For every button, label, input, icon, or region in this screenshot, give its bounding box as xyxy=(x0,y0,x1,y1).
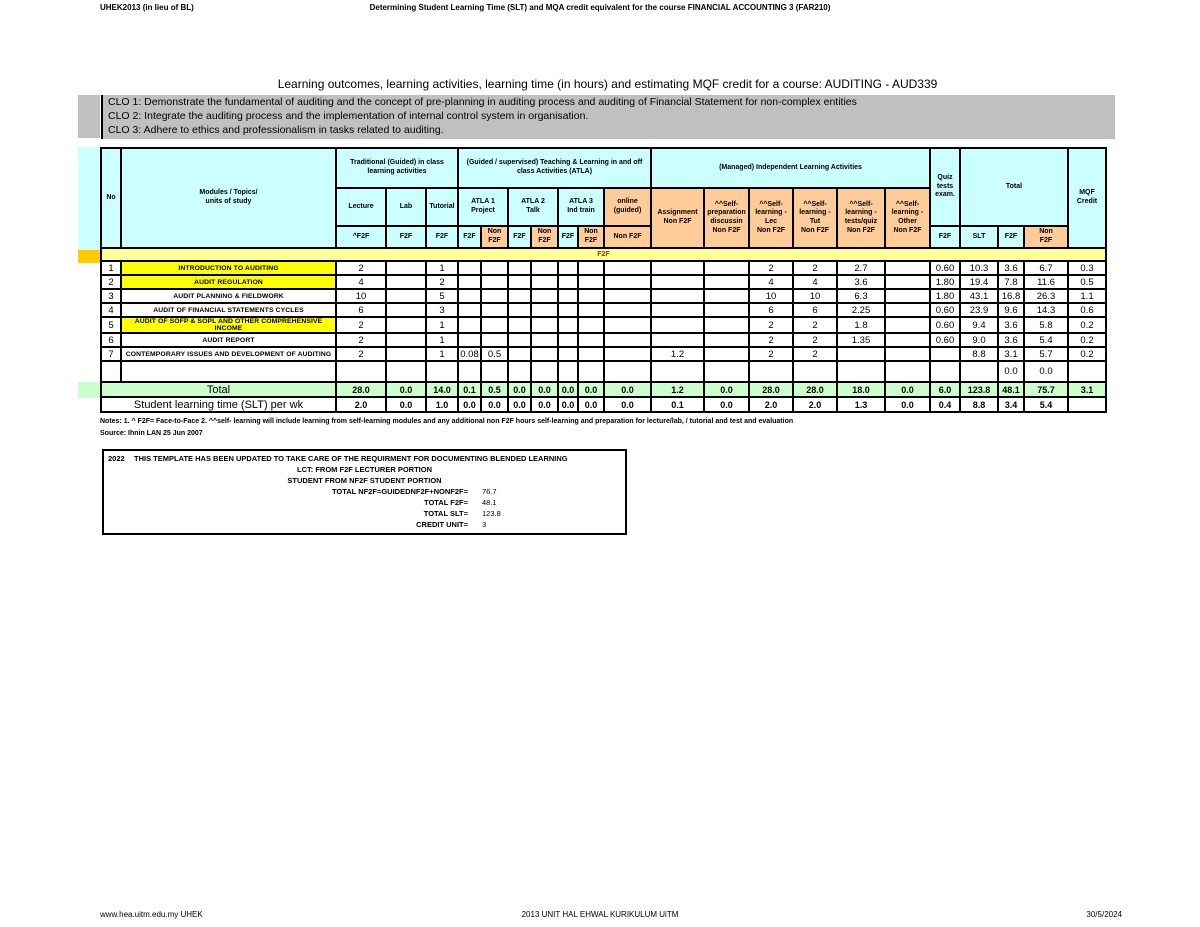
slt-wk-self-lec: 2.0 xyxy=(749,397,793,412)
cell-tutorial-row6: 1 xyxy=(426,333,458,347)
cell-atla3-nonf2f-row3 xyxy=(578,289,604,303)
cell-self-prep-row6 xyxy=(704,333,749,347)
cell-tutorial-row4: 3 xyxy=(426,303,458,317)
page-footer-center: 2013 UNIT HAL EHWAL KURIKULUM UiTM xyxy=(0,910,1200,919)
total-mqf-credit: 3.1 xyxy=(1068,382,1106,397)
calc-label: TOTAL SLT= xyxy=(108,508,468,519)
cell-atla1-nonf2f-row2 xyxy=(481,275,508,289)
cell-atla3-f2f-row1 xyxy=(558,261,578,275)
cell-atla2-nonf2f-row1 xyxy=(531,261,558,275)
cell-atla2-nonf2f-row6 xyxy=(531,333,558,347)
cell-lecture-row1: 2 xyxy=(336,261,386,275)
total-self-prep: 0.0 xyxy=(704,382,749,397)
header-mqf-credit: MQF Credit xyxy=(1068,148,1106,248)
cell-self-lec-row6: 2 xyxy=(749,333,793,347)
cell-total-nonf2f-row3: 26.3 xyxy=(1024,289,1068,303)
cell-mqf-credit-row6: 0.2 xyxy=(1068,333,1106,347)
cell-atla1-nonf2f-row7: 0.5 xyxy=(481,347,508,361)
cell-atla1-nonf2f-row4 xyxy=(481,303,508,317)
cell-lecture-row2: 4 xyxy=(336,275,386,289)
cell-total-f2f-row3: 16.8 xyxy=(998,289,1024,303)
row-number: 4 xyxy=(101,303,121,317)
slt-per-wk-label: Student learning time (SLT) per wk xyxy=(101,397,336,412)
slt-wk-self-quiz: 1.3 xyxy=(837,397,885,412)
cell-self-quiz-row2: 3.6 xyxy=(837,275,885,289)
header-no: No xyxy=(101,148,121,248)
sub-total-f2f: F2F xyxy=(998,226,1024,248)
cell-total-nonf2f-row5: 5.8 xyxy=(1024,317,1068,333)
cell-lecture-row3: 10 xyxy=(336,289,386,303)
slt-wk-total-nonf2f: 5.4 xyxy=(1024,397,1068,412)
cell-atla2-f2f-row5 xyxy=(508,317,531,333)
cell-mqf-credit-row5: 0.2 xyxy=(1068,317,1106,333)
total-atla3-f2f: 0.0 xyxy=(558,382,578,397)
cell-self-other-row4 xyxy=(885,303,930,317)
total-total-slt: 123.8 xyxy=(960,382,998,397)
cell-self-lec-row5: 2 xyxy=(749,317,793,333)
cell-atla3-nonf2f-row7 xyxy=(578,347,604,361)
topic-cell: AUDIT OF FINANCIAL STATEMENTS CYCLES xyxy=(121,303,336,317)
cell-atla2-nonf2f-row7 xyxy=(531,347,558,361)
header-self-tut: ^^Self-learning - Tut Non F2F xyxy=(793,188,837,248)
cell-online-row2 xyxy=(604,275,651,289)
cell-atla1-nonf2f-row1 xyxy=(481,261,508,275)
margin-strip-cyan xyxy=(78,147,100,250)
row-number: 5 xyxy=(101,317,121,333)
slt-wk-atla1-f2f: 0.0 xyxy=(458,397,481,412)
cell-quiz-row7 xyxy=(930,347,960,361)
slt-wk-atla2-f2f: 0.0 xyxy=(508,397,531,412)
header-band-managed: (Managed) Independent Learning Activitie… xyxy=(651,148,930,188)
cell-total-slt-row2: 19.4 xyxy=(960,275,998,289)
calc-value: 3 xyxy=(482,519,486,530)
cell-atla3-nonf2f-empty xyxy=(578,361,604,382)
row-number: 3 xyxy=(101,289,121,303)
total-total-f2f: 48.1 xyxy=(998,382,1024,397)
topic-cell: CONTEMPORARY ISSUES AND DEVELOPMENT OF A… xyxy=(121,347,336,361)
sub-atla2-nonf2f: Non F2F xyxy=(531,226,558,248)
cell-lab-row3 xyxy=(386,289,426,303)
cell-self-prep-row5 xyxy=(704,317,749,333)
cell-assignment-row5 xyxy=(651,317,704,333)
slt-wk-assignment: 0.1 xyxy=(651,397,704,412)
cell-atla2-nonf2f-row4 xyxy=(531,303,558,317)
cell-self-prep-row7 xyxy=(704,347,749,361)
total-online: 0.0 xyxy=(604,382,651,397)
cell-assignment-row3 xyxy=(651,289,704,303)
header-band-traditional: Traditional (Guided) in class learning a… xyxy=(336,148,458,188)
sub-total-slt: SLT xyxy=(960,226,998,248)
header-self-other: ^^Self-learning - Other Non F2F xyxy=(885,188,930,248)
header-tutorial: Tutorial xyxy=(426,188,458,226)
update-box-calc-rows: TOTAL NF2F=GUIDEDNF2F+NONF2F=76.7TOTAL F… xyxy=(108,486,621,530)
cell-atla3-nonf2f-row2 xyxy=(578,275,604,289)
cell-total-slt-row4: 23.9 xyxy=(960,303,998,317)
cell-total-nonf2f-row7: 5.7 xyxy=(1024,347,1068,361)
cell-atla1-nonf2f-row6 xyxy=(481,333,508,347)
row-number: 2 xyxy=(101,275,121,289)
cell-self-tut-row5: 2 xyxy=(793,317,837,333)
cell-online-row1 xyxy=(604,261,651,275)
cell-self-prep-empty xyxy=(704,361,749,382)
cell-atla1-f2f-row7: 0.08 xyxy=(458,347,481,361)
cell-total-slt-row3: 43.1 xyxy=(960,289,998,303)
cell-lab-row7 xyxy=(386,347,426,361)
total-quiz: 6.0 xyxy=(930,382,960,397)
slt-wk-self-prep: 0.0 xyxy=(704,397,749,412)
header-lab: Lab xyxy=(386,188,426,226)
calc-row-1: TOTAL F2F=48.1 xyxy=(108,497,621,508)
cell-self-tut-row1: 2 xyxy=(793,261,837,275)
cell-total-f2f-row1: 3.6 xyxy=(998,261,1024,275)
calc-value: 123.8 xyxy=(482,508,501,519)
sub-atla1-f2f: F2F xyxy=(458,226,481,248)
page-footer-right: 30/5/2024 xyxy=(1086,910,1122,919)
cell-atla3-nonf2f-row5 xyxy=(578,317,604,333)
slt-wk-self-other: 0.0 xyxy=(885,397,930,412)
cell-mqf-credit-row2: 0.5 xyxy=(1068,275,1106,289)
cell-lecture-row6: 2 xyxy=(336,333,386,347)
clo-line-1: CLO 1: Demonstrate the fundamental of au… xyxy=(108,96,1115,110)
cell-quiz-row5: 0.60 xyxy=(930,317,960,333)
cell-total-slt-row5: 9.4 xyxy=(960,317,998,333)
cell-self-other-row1 xyxy=(885,261,930,275)
topic-cell: AUDIT OF SOFP & SOPL AND OTHER COMPREHEN… xyxy=(121,317,336,333)
sub-atla2-f2f: F2F xyxy=(508,226,531,248)
cell-online-row4 xyxy=(604,303,651,317)
calc-label: TOTAL F2F= xyxy=(108,497,468,508)
cell-mqf-credit-row7: 0.2 xyxy=(1068,347,1106,361)
cell-atla3-f2f-row7 xyxy=(558,347,578,361)
cell-self-quiz-row4: 2.25 xyxy=(837,303,885,317)
cell-self-tut-row7: 2 xyxy=(793,347,837,361)
cell-total-f2f-row7: 3.1 xyxy=(998,347,1024,361)
header-atla3: ATLA 3 Ind train xyxy=(558,188,604,226)
cell-lecture-row7: 2 xyxy=(336,347,386,361)
cell-self-lec-row4: 6 xyxy=(749,303,793,317)
header-self-prep: ^^Self-preparation discussin Non F2F xyxy=(704,188,749,248)
cell-mqf-credit-empty xyxy=(1068,361,1106,382)
calc-label: TOTAL NF2F=GUIDEDNF2F+NONF2F= xyxy=(108,486,468,497)
total-lecture: 28.0 xyxy=(336,382,386,397)
cell-atla3-f2f-empty xyxy=(558,361,578,382)
sub-quiz-f2f: F2F xyxy=(930,226,960,248)
margin-strip-green xyxy=(78,382,100,398)
cell-atla3-f2f-row3 xyxy=(558,289,578,303)
total-self-lec: 28.0 xyxy=(749,382,793,397)
cell-total-f2f-row5: 3.6 xyxy=(998,317,1024,333)
row-number: 7 xyxy=(101,347,121,361)
cell-quiz-row3: 1.80 xyxy=(930,289,960,303)
total-atla2-nonf2f: 0.0 xyxy=(531,382,558,397)
margin-strip-gray xyxy=(78,95,100,138)
cell-lecture-row5: 2 xyxy=(336,317,386,333)
clo-line-3: CLO 3: Adhere to ethics and professional… xyxy=(108,124,1115,138)
cell-atla2-nonf2f-row3 xyxy=(531,289,558,303)
cell-self-quiz-row3: 6.3 xyxy=(837,289,885,303)
slt-wk-lecture: 2.0 xyxy=(336,397,386,412)
cell-atla2-f2f-row3 xyxy=(508,289,531,303)
topic-cell: INTRODUCTION TO AUDITING xyxy=(121,261,336,275)
cell-quiz-row6: 0.60 xyxy=(930,333,960,347)
header-quiz: Quiz tests exam. xyxy=(930,148,960,226)
total-lab: 0.0 xyxy=(386,382,426,397)
cell-self-lec-row3: 10 xyxy=(749,289,793,303)
cell-atla2-f2f-row1 xyxy=(508,261,531,275)
header-self-lec: ^^Self-learning - Lec Non F2F xyxy=(749,188,793,248)
topic-cell: AUDIT REGULATION xyxy=(121,275,336,289)
cell-self-prep-row1 xyxy=(704,261,749,275)
slt-wk-total-slt: 8.8 xyxy=(960,397,998,412)
cell-mqf-credit-row4: 0.6 xyxy=(1068,303,1106,317)
cell-atla3-nonf2f-row6 xyxy=(578,333,604,347)
header-band-atla: (Guided / supervised) Teaching & Learnin… xyxy=(458,148,651,188)
total-self-tut: 28.0 xyxy=(793,382,837,397)
cell-total-slt-row6: 9.0 xyxy=(960,333,998,347)
total-atla1-f2f: 0.1 xyxy=(458,382,481,397)
sub-atla1-nonf2f: Non F2F xyxy=(481,226,508,248)
slt-wk-atla3-f2f: 0.0 xyxy=(558,397,578,412)
cell-total-nonf2f-row1: 6.7 xyxy=(1024,261,1068,275)
cell-online-row5 xyxy=(604,317,651,333)
slt-table: No Modules / Topics/ units of study Trad… xyxy=(100,147,1107,413)
cell-atla1-f2f-row6 xyxy=(458,333,481,347)
clo-line-2: CLO 2: Integrate the auditing process an… xyxy=(108,110,1115,124)
cell-atla2-nonf2f-empty xyxy=(531,361,558,382)
sub-atla3-f2f: F2F xyxy=(558,226,578,248)
cell-atla3-f2f-row2 xyxy=(558,275,578,289)
cell-self-tut-row4: 6 xyxy=(793,303,837,317)
update-box-line1: THIS TEMPLATE HAS BEEN UPDATED TO TAKE C… xyxy=(134,453,568,464)
calc-row-0: TOTAL NF2F=GUIDEDNF2F+NONF2F=76.7 xyxy=(108,486,621,497)
cell-self-lec-row7: 2 xyxy=(749,347,793,361)
cell-total-f2f-row2: 7.8 xyxy=(998,275,1024,289)
cell-lecture-empty xyxy=(336,361,386,382)
slt-wk-online: 0.0 xyxy=(604,397,651,412)
cell-self-other-row2 xyxy=(885,275,930,289)
f2f-section-band: F2F xyxy=(101,248,1106,261)
total-atla3-nonf2f: 0.0 xyxy=(578,382,604,397)
cell-atla3-f2f-row6 xyxy=(558,333,578,347)
cell-quiz-row2: 1.80 xyxy=(930,275,960,289)
cell-self-lec-empty xyxy=(749,361,793,382)
cell-total-f2f-empty: 0.0 xyxy=(998,361,1024,382)
cell-self-lec-row1: 2 xyxy=(749,261,793,275)
cell-self-tut-row6: 2 xyxy=(793,333,837,347)
cell-atla2-f2f-row4 xyxy=(508,303,531,317)
cell-self-quiz-row5: 1.8 xyxy=(837,317,885,333)
header-assignment: Assignment Non F2F xyxy=(651,188,704,248)
cell-assignment-row7: 1.2 xyxy=(651,347,704,361)
sub-atla3-nonf2f: Non F2F xyxy=(578,226,604,248)
cell-self-other-row5 xyxy=(885,317,930,333)
header-lecture: Lecture xyxy=(336,188,386,226)
update-box-year: 2022 xyxy=(108,453,134,464)
cell-atla3-nonf2f-row1 xyxy=(578,261,604,275)
row-number-empty xyxy=(101,361,121,382)
cell-self-other-row6 xyxy=(885,333,930,347)
cell-self-lec-row2: 4 xyxy=(749,275,793,289)
cell-online-row3 xyxy=(604,289,651,303)
cell-self-quiz-row7 xyxy=(837,347,885,361)
cell-self-other-row3 xyxy=(885,289,930,303)
slt-wk-mqf-credit xyxy=(1068,397,1106,412)
cell-total-f2f-row6: 3.6 xyxy=(998,333,1024,347)
total-assignment: 1.2 xyxy=(651,382,704,397)
cell-lab-empty xyxy=(386,361,426,382)
source-line: Source: Ihnin LAN 25 Jun 2007 xyxy=(100,430,203,437)
slt-wk-tutorial: 1.0 xyxy=(426,397,458,412)
sub-online-nonf2f: Non F2F xyxy=(604,226,651,248)
total-self-other: 0.0 xyxy=(885,382,930,397)
cell-atla1-f2f-row3 xyxy=(458,289,481,303)
total-atla1-nonf2f: 0.5 xyxy=(481,382,508,397)
cell-total-slt-empty xyxy=(960,361,998,382)
slt-wk-atla2-nonf2f: 0.0 xyxy=(531,397,558,412)
cell-self-prep-row3 xyxy=(704,289,749,303)
sub-total-nonf2f: Non F2F xyxy=(1024,226,1068,248)
cell-assignment-row1 xyxy=(651,261,704,275)
cell-self-quiz-row1: 2.7 xyxy=(837,261,885,275)
header-total: Total xyxy=(960,148,1068,226)
cell-lab-row4 xyxy=(386,303,426,317)
cell-lab-row2 xyxy=(386,275,426,289)
update-box: 2022 THIS TEMPLATE HAS BEEN UPDATED TO T… xyxy=(102,449,627,535)
cell-atla2-f2f-empty xyxy=(508,361,531,382)
cell-atla1-nonf2f-row3 xyxy=(481,289,508,303)
cell-total-nonf2f-row6: 5.4 xyxy=(1024,333,1068,347)
cell-assignment-row6 xyxy=(651,333,704,347)
header-atla2: ATLA 2 Talk xyxy=(508,188,558,226)
header-atla1: ATLA 1 Project xyxy=(458,188,508,226)
cell-lab-row1 xyxy=(386,261,426,275)
cell-tutorial-row3: 5 xyxy=(426,289,458,303)
slt-wk-atla3-nonf2f: 0.0 xyxy=(578,397,604,412)
cell-tutorial-row7: 1 xyxy=(426,347,458,361)
cell-atla2-nonf2f-row2 xyxy=(531,275,558,289)
header-modules: Modules / Topics/ units of study xyxy=(121,148,336,248)
cell-atla2-nonf2f-row5 xyxy=(531,317,558,333)
cell-tutorial-row2: 2 xyxy=(426,275,458,289)
cell-lab-row5 xyxy=(386,317,426,333)
cell-assignment-row4 xyxy=(651,303,704,317)
row-number: 1 xyxy=(101,261,121,275)
cell-atla3-nonf2f-row4 xyxy=(578,303,604,317)
cell-self-prep-row4 xyxy=(704,303,749,317)
sub-lecture-f2f: ^F2F xyxy=(336,226,386,248)
total-row-label: Total xyxy=(101,382,336,397)
cell-total-slt-row7: 8.8 xyxy=(960,347,998,361)
sub-lab-f2f: F2F xyxy=(386,226,426,248)
cell-lab-row6 xyxy=(386,333,426,347)
cell-atla2-f2f-row6 xyxy=(508,333,531,347)
cell-online-empty xyxy=(604,361,651,382)
cell-atla2-f2f-row7 xyxy=(508,347,531,361)
cell-total-nonf2f-row4: 14.3 xyxy=(1024,303,1068,317)
calc-row-2: TOTAL SLT=123.8 xyxy=(108,508,621,519)
topic-cell: AUDIT REPORT xyxy=(121,333,336,347)
cell-mqf-credit-row1: 0.3 xyxy=(1068,261,1106,275)
cell-atla1-f2f-row1 xyxy=(458,261,481,275)
calc-value: 48.1 xyxy=(482,497,497,508)
calc-label: CREDIT UNIT= xyxy=(108,519,468,530)
cell-self-quiz-empty xyxy=(837,361,885,382)
cell-atla1-f2f-row2 xyxy=(458,275,481,289)
cell-atla1-nonf2f-row5 xyxy=(481,317,508,333)
cell-mqf-credit-row3: 1.1 xyxy=(1068,289,1106,303)
cell-online-row6 xyxy=(604,333,651,347)
topic-cell: AUDIT PLANNING & FIELDWORK xyxy=(121,289,336,303)
slt-wk-lab: 0.0 xyxy=(386,397,426,412)
cell-total-nonf2f-empty: 0.0 xyxy=(1024,361,1068,382)
update-box-line2: LCT: FROM F2F LECTURER PORTION xyxy=(108,464,621,475)
cell-quiz-row1: 0.60 xyxy=(930,261,960,275)
total-self-quiz: 18.0 xyxy=(837,382,885,397)
cell-quiz-row4: 0.60 xyxy=(930,303,960,317)
slt-wk-quiz: 0.4 xyxy=(930,397,960,412)
cell-total-slt-row1: 10.3 xyxy=(960,261,998,275)
cell-online-row7 xyxy=(604,347,651,361)
cell-lecture-row4: 6 xyxy=(336,303,386,317)
cell-tutorial-empty xyxy=(426,361,458,382)
cell-total-f2f-row4: 9.6 xyxy=(998,303,1024,317)
slt-wk-self-tut: 2.0 xyxy=(793,397,837,412)
row-number: 6 xyxy=(101,333,121,347)
cell-self-tut-row2: 4 xyxy=(793,275,837,289)
cell-atla2-f2f-row2 xyxy=(508,275,531,289)
sub-tutorial-f2f: F2F xyxy=(426,226,458,248)
margin-strip-amber xyxy=(78,250,100,263)
cell-atla1-nonf2f-empty xyxy=(481,361,508,382)
cell-self-quiz-row6: 1.35 xyxy=(837,333,885,347)
table-body: F2F1INTRODUCTION TO AUDITING21222.70.601… xyxy=(101,248,1106,412)
cell-self-other-row7 xyxy=(885,347,930,361)
spreadsheet-page: UHEK2013 (in lieu of BL) Determining Stu… xyxy=(0,0,1200,927)
cell-quiz-empty xyxy=(930,361,960,382)
update-box-line3: STUDENT FROM NF2F STUDENT PORTION xyxy=(108,475,621,486)
header-online-guided: online (guided) xyxy=(604,188,651,226)
slt-wk-total-f2f: 3.4 xyxy=(998,397,1024,412)
page-header-center: Determining Student Learning Time (SLT) … xyxy=(0,3,1200,12)
total-atla2-f2f: 0.0 xyxy=(508,382,531,397)
calc-row-3: CREDIT UNIT=3 xyxy=(108,519,621,530)
cell-atla3-f2f-row5 xyxy=(558,317,578,333)
cell-atla3-f2f-row4 xyxy=(558,303,578,317)
cell-tutorial-row5: 1 xyxy=(426,317,458,333)
clo-box: CLO 1: Demonstrate the fundamental of au… xyxy=(101,95,1115,139)
cell-atla1-f2f-row5 xyxy=(458,317,481,333)
cell-total-nonf2f-row2: 11.6 xyxy=(1024,275,1068,289)
cell-assignment-empty xyxy=(651,361,704,382)
calc-value: 76.7 xyxy=(482,486,497,497)
cell-self-prep-row2 xyxy=(704,275,749,289)
cell-assignment-row2 xyxy=(651,275,704,289)
header-self-quiz: ^^Self-learning - tests/quiz Non F2F xyxy=(837,188,885,248)
cell-self-tut-empty xyxy=(793,361,837,382)
total-total-nonf2f: 75.7 xyxy=(1024,382,1068,397)
slt-wk-atla1-nonf2f: 0.0 xyxy=(481,397,508,412)
total-tutorial: 14.0 xyxy=(426,382,458,397)
page-title: Learning outcomes, learning activities, … xyxy=(100,77,1115,91)
cell-atla1-f2f-empty xyxy=(458,361,481,382)
cell-atla1-f2f-row4 xyxy=(458,303,481,317)
cell-self-tut-row3: 10 xyxy=(793,289,837,303)
cell-tutorial-row1: 1 xyxy=(426,261,458,275)
cell-self-other-empty xyxy=(885,361,930,382)
notes-line: Notes: 1. ^ F2F= Face-to-Face 2. ^^self-… xyxy=(100,418,793,425)
topic-cell-empty xyxy=(121,361,336,382)
